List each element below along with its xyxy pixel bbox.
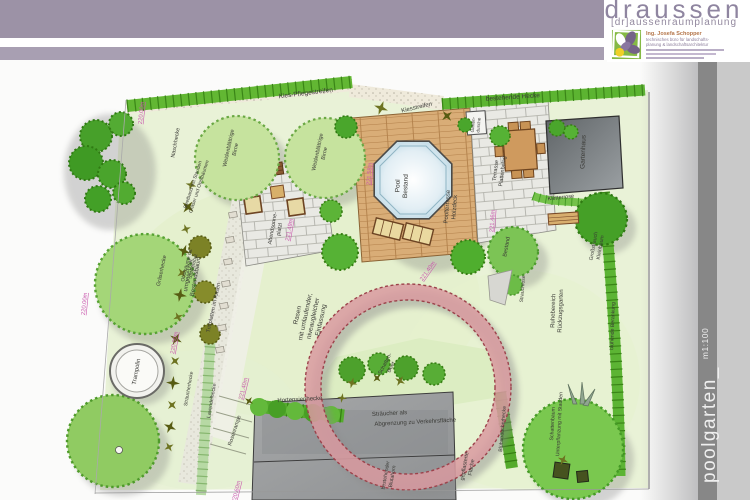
company-contact-line — [646, 53, 716, 55]
project-title-vertical: poolgarten_m1:100 — [699, 283, 721, 483]
garden-plan: Kies-Pflegestreifen Kiesstreifen bestehe… — [0, 0, 750, 500]
bench-ruhebereich — [548, 212, 579, 225]
pear-tree-1 — [195, 116, 279, 200]
company-contact-line — [646, 57, 704, 59]
svg-text:Bestand: Bestand — [402, 174, 410, 198]
label-gartenhaus: Gartenhaus — [579, 134, 587, 169]
company-card: Ing. Josefa Schopper technisches büro fü… — [607, 27, 750, 62]
tree — [67, 395, 159, 487]
project-name: poolgarten_ — [699, 366, 720, 483]
svg-text:Pool: Pool — [394, 179, 401, 193]
header-band-bottom — [0, 47, 604, 60]
small-table — [270, 185, 285, 199]
sidebar-light-strip — [717, 62, 750, 500]
pool — [374, 141, 452, 219]
header-band-top — [0, 0, 604, 38]
company-tagline-2: planung & landschaftsarchitektur — [646, 42, 724, 47]
shade-tree — [523, 399, 623, 499]
project-scale: m1:100 — [700, 328, 710, 359]
svg-text:Ruhebereich: Ruhebereich — [550, 294, 557, 328]
chair — [287, 198, 305, 216]
bestand-tree — [488, 227, 538, 277]
label-gartendusche: Garten- dusche — [470, 116, 482, 133]
company-contact-line — [646, 49, 724, 51]
flower-logo-icon — [611, 29, 642, 60]
